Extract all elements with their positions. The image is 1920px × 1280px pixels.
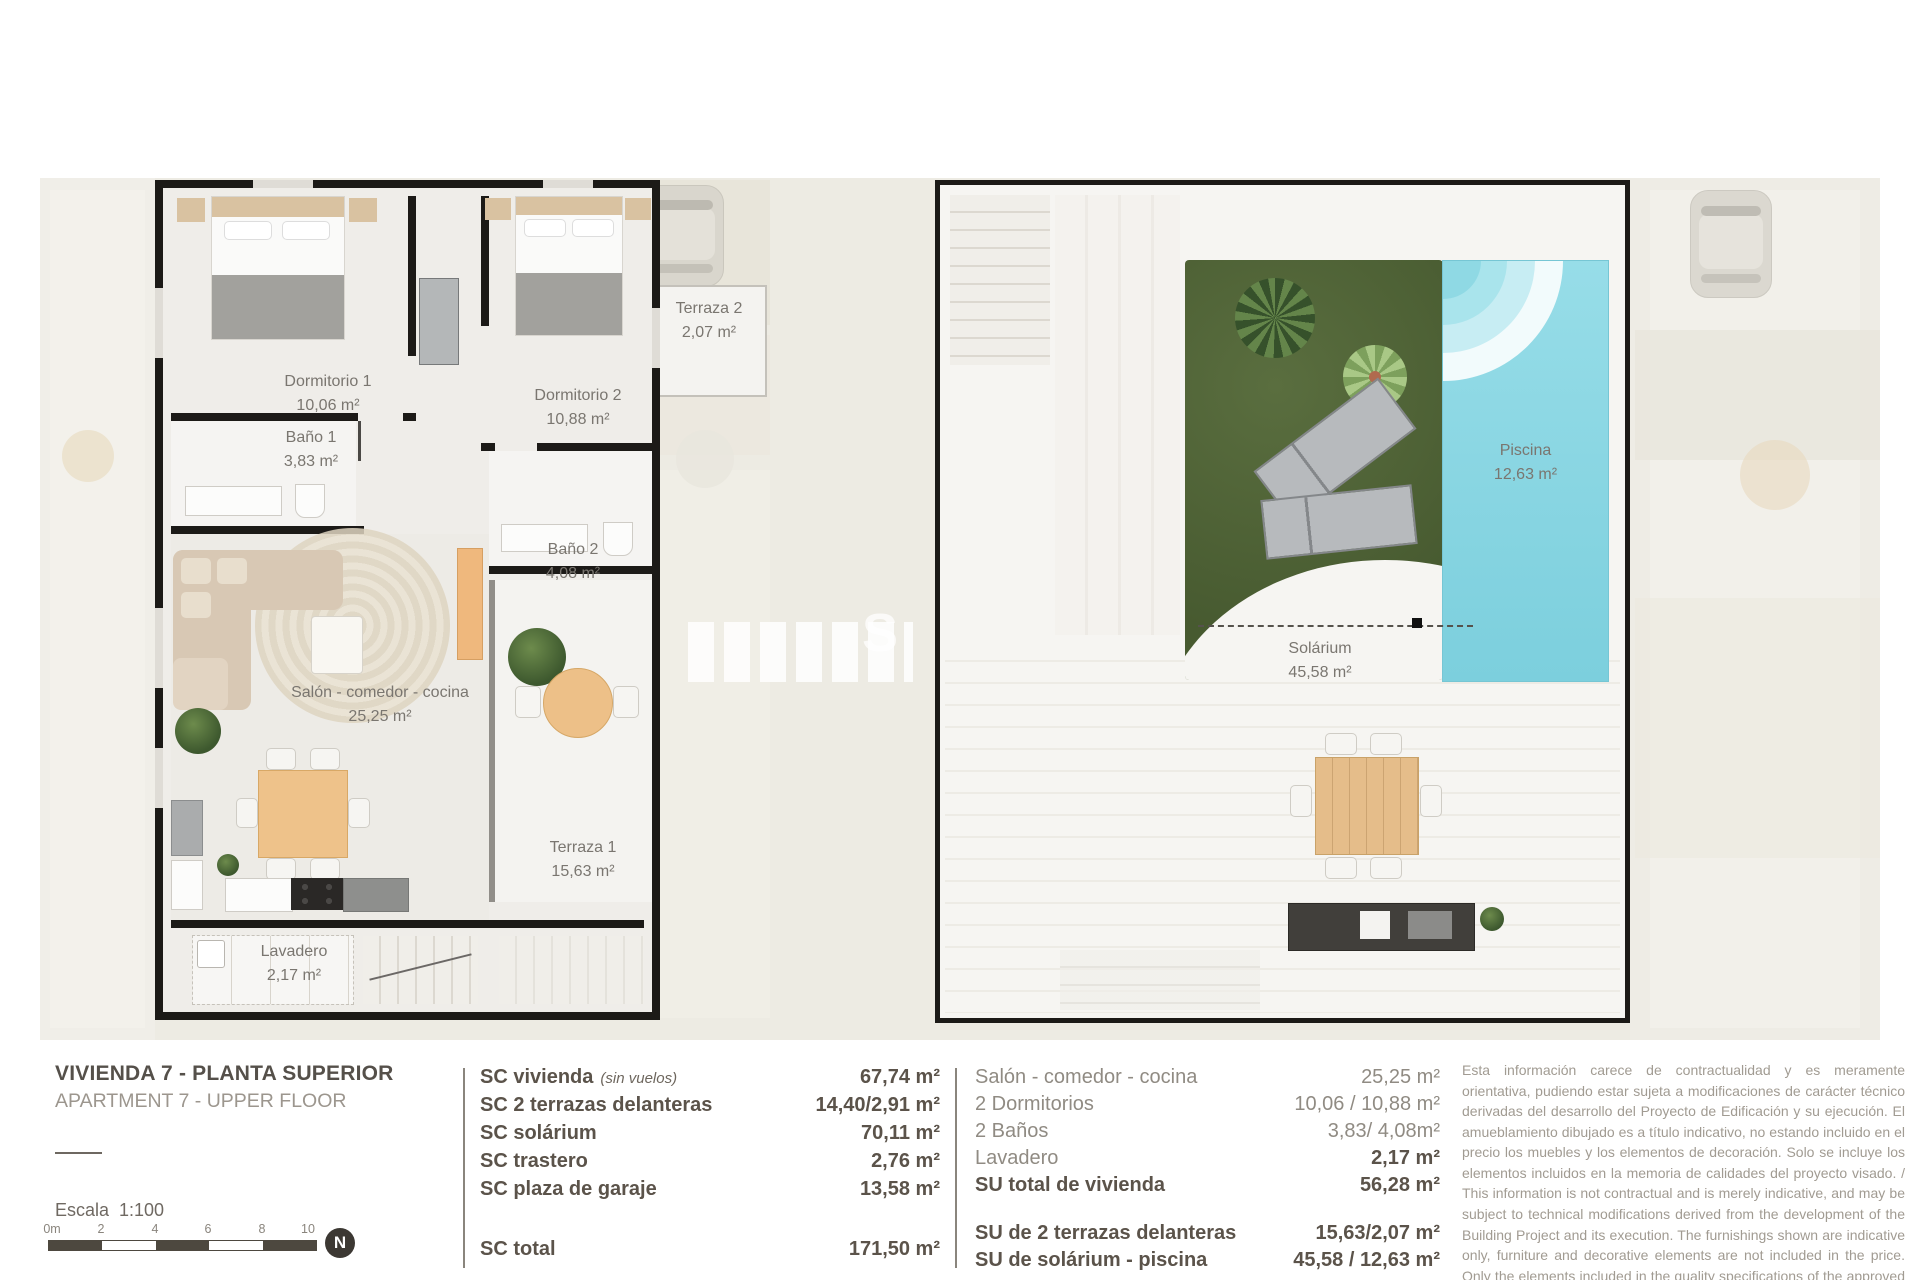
scale-tick: 6	[205, 1222, 212, 1236]
neighbour-parasol-mid	[676, 430, 734, 488]
su-value: 15,63/2,07 m²	[1315, 1222, 1440, 1245]
su-row: 2 Baños 3,83/ 4,08m²	[975, 1120, 1440, 1143]
sc-label: SC solárium	[480, 1122, 597, 1145]
blanket	[516, 273, 622, 335]
car-roof	[651, 208, 715, 260]
wardrobe	[419, 278, 459, 365]
su-label: SU de 2 terrazas delanteras	[975, 1222, 1236, 1245]
watermark-letter: S	[862, 602, 898, 664]
su-row: SU total de vivienda 56,28 m²	[975, 1174, 1440, 1197]
room-label-solarium: Solárium 45,58 m²	[1255, 637, 1385, 685]
scale-tick: 2	[98, 1222, 105, 1236]
door-opening	[495, 443, 537, 451]
room-name: Terraza 1	[503, 836, 663, 860]
room-area: 2,17 m²	[214, 964, 374, 988]
sc-label: SC vivienda	[480, 1066, 593, 1088]
chair	[266, 748, 296, 770]
scale-bar	[48, 1240, 317, 1251]
su-row: Lavadero 2,17 m²	[975, 1147, 1440, 1170]
room-label-terraza-2: Terraza 2 2,07 m²	[657, 297, 761, 345]
neighbour-strip-left-inner	[50, 190, 145, 1028]
room-name: Dormitorio 2	[498, 384, 658, 408]
blanket	[212, 275, 344, 339]
window	[155, 608, 163, 688]
room-area: 45,58 m²	[1255, 661, 1385, 685]
su-row: 2 Dormitorios 10,06 / 10,88 m²	[975, 1093, 1440, 1116]
title-divider	[55, 1152, 102, 1154]
pool: Piscina 12,63 m²	[1442, 260, 1609, 682]
deck-planks	[945, 640, 1620, 1013]
room-label-bano-2: Baño 2 4,08 m²	[493, 538, 653, 586]
car-icon	[1690, 190, 1772, 298]
window	[543, 180, 593, 188]
su-value: 2,17 m²	[1371, 1147, 1440, 1170]
terrace-2-balcony: Terraza 2 2,07 m²	[655, 285, 767, 397]
stairs	[499, 936, 644, 1004]
stairs	[1060, 950, 1260, 1010]
terrace-table	[543, 668, 613, 738]
chair	[1370, 733, 1402, 755]
palm-plant	[1235, 278, 1315, 358]
window	[155, 288, 163, 358]
room-name: Baño 1	[231, 426, 391, 450]
chair	[515, 686, 541, 718]
scale-tick: 4	[152, 1222, 159, 1236]
sofa-cushion	[181, 558, 211, 584]
north-compass-icon: N	[325, 1228, 355, 1258]
sc-total-label: SC total	[480, 1238, 556, 1261]
nightstand	[177, 198, 205, 222]
chair	[613, 686, 639, 718]
sc-value: 67,74 m²	[860, 1066, 940, 1089]
chair	[266, 858, 296, 880]
bed	[211, 196, 345, 340]
room-area: 3,83 m²	[231, 450, 391, 474]
car-windshield	[1701, 206, 1762, 217]
sc-value: 13,58 m²	[860, 1178, 940, 1201]
chair	[1420, 785, 1442, 817]
room-name: Lavadero	[214, 940, 374, 964]
room-name: Baño 2	[493, 538, 653, 562]
su-value: 10,06 / 10,88 m²	[1294, 1093, 1440, 1116]
kitchen-counter	[225, 878, 293, 912]
legal-disclaimer: Esta información carece de contractualid…	[1462, 1060, 1905, 1280]
sc-row: SC plaza de garaje 13,58 m²	[480, 1178, 940, 1201]
room-area: 2,07 m²	[657, 321, 761, 345]
coffee-table	[311, 616, 363, 674]
sc-label: SC plaza de garaje	[480, 1178, 657, 1201]
sc-value: 14,40/2,91 m²	[815, 1094, 940, 1117]
plant	[217, 854, 239, 876]
plant	[175, 708, 221, 754]
sc-row: SC trastero 2,76 m²	[480, 1150, 940, 1173]
sheet-title: VIVIENDA 7 - PLANTA SUPERIOR	[55, 1062, 394, 1086]
sc-value: 2,76 m²	[871, 1150, 940, 1173]
sc-value: 70,11 m²	[861, 1122, 940, 1145]
chair	[236, 798, 258, 828]
scale-tick: 10	[301, 1222, 315, 1236]
sc-note: (sin vuelos)	[600, 1070, 677, 1087]
wall	[408, 196, 416, 356]
headboard	[516, 197, 622, 215]
su-label: Lavadero	[975, 1147, 1058, 1170]
wall	[171, 920, 644, 928]
sofa-chaise	[173, 658, 228, 710]
nightstand	[349, 198, 377, 222]
room-label-lavadero: Lavadero 2,17 m²	[214, 940, 374, 988]
stairs	[363, 936, 478, 1004]
room-name: Solárium	[1255, 637, 1385, 661]
stairs	[950, 195, 1050, 365]
room-area: 15,63 m²	[503, 860, 663, 884]
room-name: Salón - comedor - cocina	[260, 681, 500, 705]
room-name: Dormitorio 1	[248, 370, 408, 394]
chair	[1370, 857, 1402, 879]
sideboard	[457, 548, 483, 660]
dining-table	[258, 770, 348, 858]
sc-total-row: SC total 171,50 m²	[480, 1238, 940, 1261]
su-label: Salón - comedor - cocina	[975, 1066, 1197, 1089]
room-label-bano-1: Baño 1 3,83 m²	[231, 426, 391, 474]
room-area: 10,06 m²	[248, 394, 408, 418]
window	[155, 748, 163, 808]
plant	[1480, 907, 1504, 931]
room-label-salon: Salón - comedor - cocina 25,25 m²	[260, 681, 500, 729]
room-area: 25,25 m²	[260, 705, 500, 729]
room-area: 10,88 m²	[498, 408, 658, 432]
glass-wall	[489, 580, 495, 902]
su-label: 2 Dormitorios	[975, 1093, 1094, 1116]
table-divider	[463, 1068, 465, 1268]
scale-label: Escala 1:100	[55, 1200, 164, 1221]
su-label: SU total de vivienda	[975, 1174, 1165, 1197]
chair	[1290, 785, 1312, 817]
nightstand	[625, 198, 651, 220]
chair	[310, 858, 340, 880]
scale-tick: 0m	[43, 1222, 60, 1236]
car-rear-window	[1701, 274, 1762, 284]
pillow	[224, 221, 272, 240]
su-row: Salón - comedor - cocina 25,25 m²	[975, 1066, 1440, 1089]
room-label-piscina: Piscina 12,63 m²	[1443, 439, 1608, 487]
su-value: 56,28 m²	[1360, 1174, 1440, 1197]
toilet	[295, 484, 325, 518]
car-windshield	[653, 200, 714, 210]
room-label-terraza-1: Terraza 1 15,63 m²	[503, 836, 663, 884]
cooktop	[291, 878, 343, 910]
outdoor-cooktop	[1408, 911, 1452, 939]
sc-label-group: SC vivienda(sin vuelos)	[480, 1066, 677, 1089]
sheet-subtitle: APARTMENT 7 - UPPER FLOOR	[55, 1090, 346, 1113]
sink-counter	[185, 486, 282, 516]
fridge	[171, 800, 203, 856]
pillow	[524, 219, 566, 237]
room-area: 12,63 m²	[1443, 463, 1608, 487]
boundary-dashed-line	[1198, 625, 1473, 627]
su-row: SU de 2 terrazas delanteras 15,63/2,07 m…	[975, 1222, 1440, 1245]
room-name: Terraza 2	[657, 297, 761, 321]
sc-row: SC solárium 70,11 m²	[480, 1122, 940, 1145]
sc-label: SC 2 terrazas delanteras	[480, 1094, 712, 1117]
car-roof	[1699, 214, 1763, 269]
sc-label: SC trastero	[480, 1150, 588, 1173]
window	[253, 180, 313, 188]
room-label-dormitorio-2: Dormitorio 2 10,88 m²	[498, 384, 658, 432]
headboard	[212, 197, 344, 217]
su-label: 2 Baños	[975, 1120, 1048, 1143]
chair	[310, 748, 340, 770]
apartment-floor-plan: Dormitorio 1 10,06 m² Dormitorio 2 10,88…	[155, 180, 660, 1020]
room-label-dormitorio-1: Dormitorio 1 10,06 m²	[248, 370, 408, 418]
window	[652, 308, 660, 368]
lawn	[1185, 260, 1443, 680]
sc-row: SC vivienda(sin vuelos) 67,74 m²	[480, 1066, 940, 1089]
neighbour-parasol-right	[1740, 440, 1810, 510]
neighbour-terrace-right	[1635, 598, 1880, 858]
chair	[1325, 733, 1357, 755]
pillow	[572, 219, 614, 237]
scale-tick: 8	[259, 1222, 266, 1236]
nightstand	[485, 198, 511, 220]
car-rear-window	[653, 264, 714, 273]
su-row: SU de solárium - piscina 45,58 / 12,63 m…	[975, 1249, 1440, 1272]
su-label: SU de solárium - piscina	[975, 1249, 1207, 1272]
room-name: Piscina	[1443, 439, 1608, 463]
chair	[348, 798, 370, 828]
kitchen-sink-cabinet	[171, 860, 203, 910]
chair	[1325, 857, 1357, 879]
outdoor-sink	[1360, 911, 1390, 939]
sc-total-value: 171,50 m²	[849, 1238, 940, 1261]
su-value: 25,25 m²	[1361, 1066, 1440, 1089]
boundary-marker	[1412, 618, 1422, 628]
su-value: 45,58 / 12,63 m²	[1293, 1249, 1440, 1272]
sc-row: SC 2 terrazas delanteras 14,40/2,91 m²	[480, 1094, 940, 1117]
pergola-slats	[1055, 195, 1180, 635]
kitchen-cabinet	[343, 878, 409, 912]
floor-plan-sheet: S Terraza 2 2,07 m²	[0, 0, 1920, 1280]
sofa-cushion	[181, 592, 211, 618]
neighbour-block-right	[1635, 330, 1880, 460]
table-divider	[955, 1068, 957, 1268]
outdoor-dining-table	[1315, 757, 1419, 855]
su-value: 3,83/ 4,08m²	[1328, 1120, 1440, 1143]
bed	[515, 196, 623, 336]
neighbour-table-left	[62, 430, 114, 482]
room-area: 4,08 m²	[493, 562, 653, 586]
sofa-cushion	[217, 558, 247, 584]
pillow	[282, 221, 330, 240]
solarium-floor-plan: Piscina 12,63 m² Solárium 45,58 m²	[935, 180, 1630, 1023]
